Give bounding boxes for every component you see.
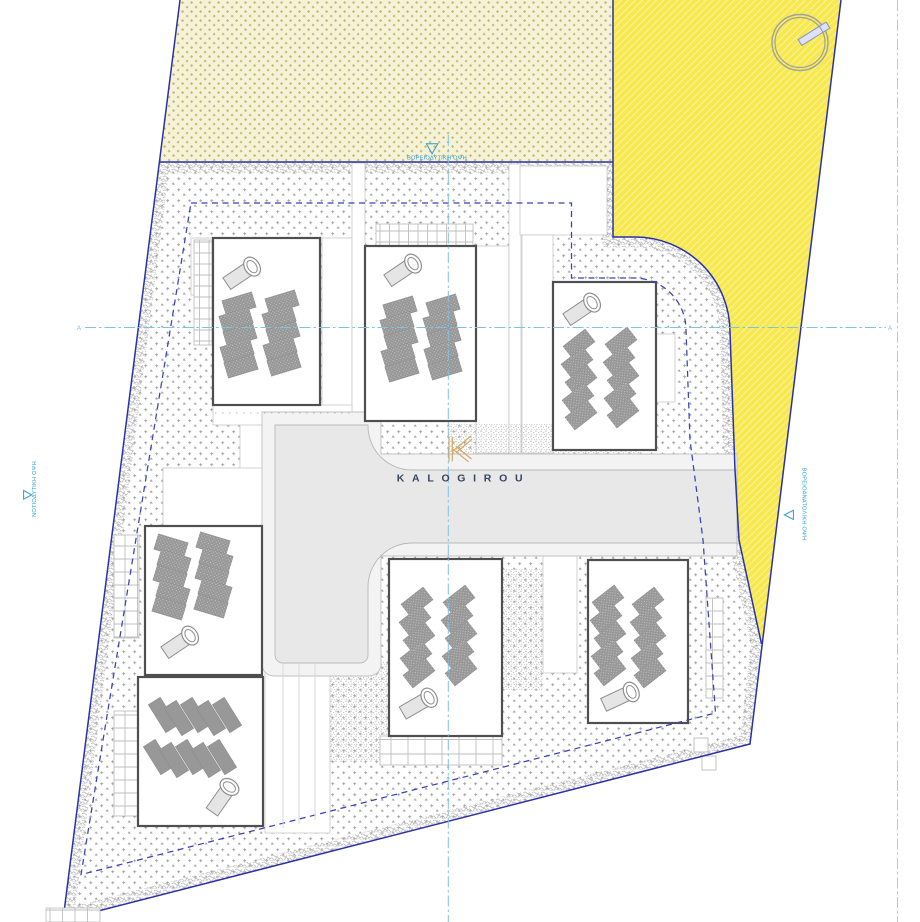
svg-text:ΒΟΡΕΙΟΑΝΑΤΟΛΙΚΗ ΟΨΗ: ΒΟΡΕΙΟΑΝΑΤΟΛΙΚΗ ΟΨΗ (801, 468, 807, 541)
svg-text:KALOGIROU: KALOGIROU (397, 473, 530, 485)
svg-text:ΒΟΡΕΙΟΔΥΤΙΚΗ ΟΨΗ: ΒΟΡΕΙΟΔΥΤΙΚΗ ΟΨΗ (407, 156, 467, 162)
svg-text:A: A (888, 326, 892, 332)
svg-text:ΝΟΤΙΟΔΥΤΙΚΗ ΟΨΗ: ΝΟΤΙΟΔΥΤΙΚΗ ΟΨΗ (32, 461, 38, 517)
svg-text:A: A (77, 326, 81, 332)
